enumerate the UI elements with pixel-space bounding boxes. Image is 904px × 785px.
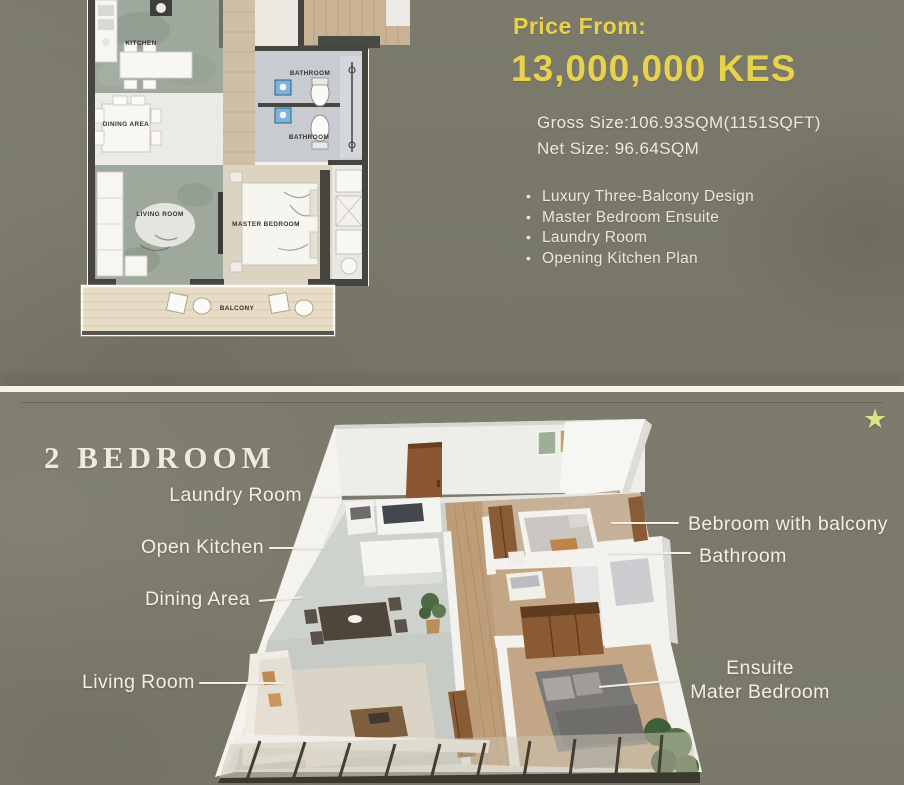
feature-list: • Luxury Three-Balcony Design • Master B…	[526, 188, 754, 270]
section-title: 2 BEDROOM	[44, 440, 276, 476]
plan2d-closet-column	[332, 165, 366, 285]
callout-living-room: Living Room	[82, 671, 195, 694]
callout-ensuite-line1: Ensuite	[686, 656, 834, 680]
callout-laundry-room: Laundry Room	[120, 484, 302, 507]
callout-bedroom-balcony: Bebroom with balcony	[688, 513, 888, 536]
feature-item: • Opening Kitchen Plan	[526, 250, 754, 271]
plan2d-label-living: LIVING ROOM	[136, 211, 183, 218]
feature-item: • Laundry Room	[526, 229, 754, 250]
plan2d-bathrooms: BATHROOM BATHROOM	[255, 46, 368, 162]
plan2d-label-dining: DINING AREA	[103, 121, 149, 128]
plan2d-dining: DINING AREA	[94, 93, 223, 165]
feature-item: • Master Bedroom Ensuite	[526, 209, 754, 230]
bullet-icon: •	[526, 188, 542, 204]
plan2d-master: MASTER BEDROOM	[223, 165, 332, 285]
star-icon: ★	[863, 406, 887, 433]
top-section: KITCHEN DINING AREA	[0, 0, 904, 386]
leader-line-bedroom-balcony	[611, 522, 679, 524]
leader-line-bathroom	[607, 552, 691, 554]
callout-dining-area: Dining Area	[145, 588, 250, 611]
plan2d-balcony: BALCONY	[82, 286, 334, 335]
feature-text: Luxury Three-Balcony Design	[542, 188, 754, 206]
gross-size: Gross Size:106.93SQM(1151SQFT)	[537, 113, 821, 133]
plan2d-label-master: MASTER BEDROOM	[232, 221, 300, 228]
plan3d-balcony-rail	[218, 732, 700, 783]
plan2d-label-bathroom-1: BATHROOM	[290, 70, 330, 77]
bottom-section: 2 BEDROOM ★ Laundry Room Open Kitchen Di…	[0, 392, 904, 785]
bullet-icon: •	[526, 229, 542, 245]
plan2d-label-balcony: BALCONY	[220, 305, 255, 312]
bullet-icon: •	[526, 250, 542, 266]
callout-open-kitchen: Open Kitchen	[141, 536, 264, 559]
leader-line-living	[199, 682, 283, 684]
callout-bathroom: Bathroom	[699, 545, 787, 568]
plan2d-label-bathroom-2: BATHROOM	[289, 134, 329, 141]
leader-line-laundry	[311, 495, 341, 497]
plan2d-living: LIVING ROOM	[95, 165, 223, 285]
floorplan-2d: KITCHEN DINING AREA	[70, 0, 412, 340]
callout-ensuite-line2: Mater Bedroom	[686, 680, 834, 704]
net-size: Net Size: 96.64SQM	[537, 139, 699, 159]
feature-text: Opening Kitchen Plan	[542, 250, 698, 268]
plan2d-kitchen: KITCHEN	[95, 0, 223, 93]
bullet-icon: •	[526, 209, 542, 225]
flyer-page: KITCHEN DINING AREA	[0, 0, 904, 785]
price-value: 13,000,000 KES	[511, 48, 797, 90]
callout-ensuite-master: Ensuite Mater Bedroom	[686, 656, 834, 704]
leader-line-kitchen	[269, 547, 324, 549]
feature-text: Laundry Room	[542, 229, 647, 247]
price-from-label: Price From:	[513, 13, 646, 40]
feature-item: • Luxury Three-Balcony Design	[526, 188, 754, 209]
plan2d-label-kitchen: KITCHEN	[125, 40, 156, 47]
feature-text: Master Bedroom Ensuite	[542, 209, 719, 227]
plan2d-wood-deck	[302, 0, 410, 48]
